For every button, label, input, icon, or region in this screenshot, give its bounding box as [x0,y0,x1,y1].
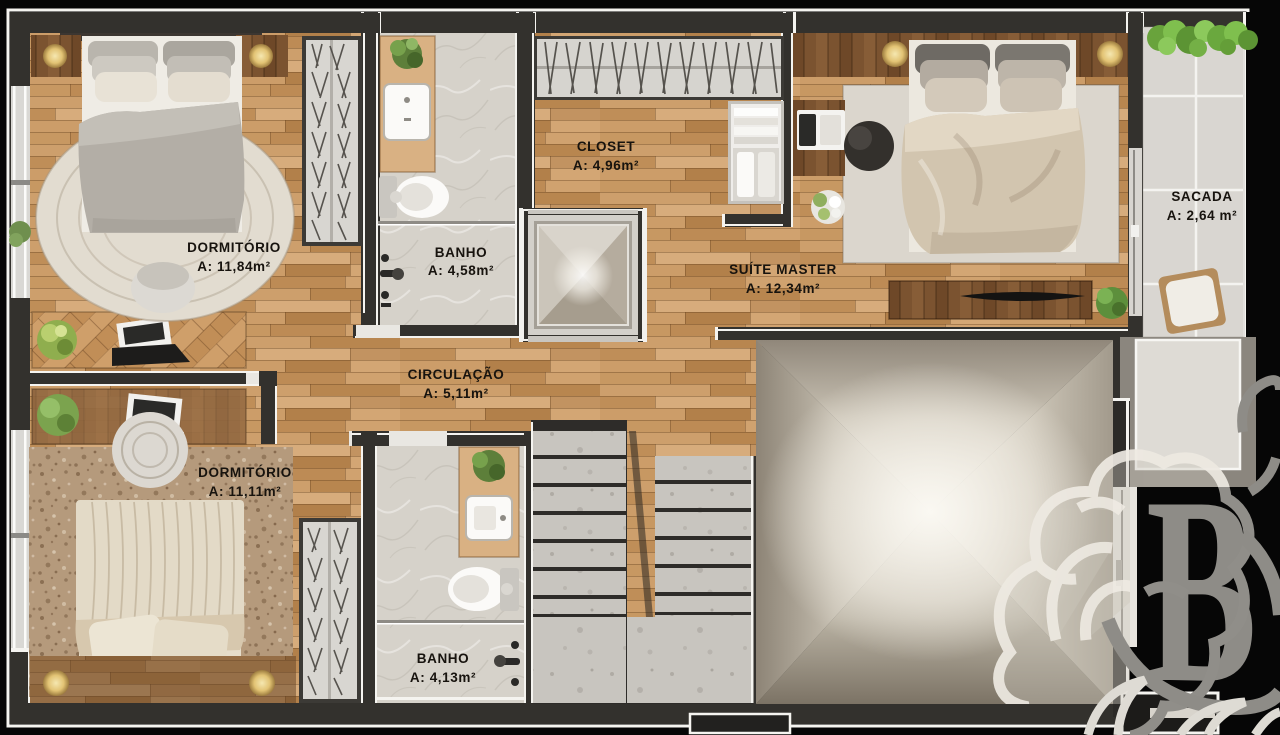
svg-text:A: 12,34m²: A: 12,34m² [746,281,820,296]
svg-text:A: 11,11m²: A: 11,11m² [209,484,282,499]
svg-text:BANHO: BANHO [417,651,470,666]
svg-text:SUÍTE MASTER: SUÍTE MASTER [729,262,837,277]
svg-text:DORMITÓRIO: DORMITÓRIO [187,240,281,255]
svg-text:SACADA: SACADA [1171,189,1232,204]
svg-text:A: 4,13m²: A: 4,13m² [410,670,476,685]
svg-text:CLOSET: CLOSET [577,139,636,154]
svg-text:DORMITÓRIO: DORMITÓRIO [198,465,292,480]
svg-text:A: 2,64 m²: A: 2,64 m² [1167,208,1238,223]
svg-text:BANHO: BANHO [435,245,488,260]
svg-text:A: 4,58m²: A: 4,58m² [428,263,494,278]
svg-text:A: 5,11m²: A: 5,11m² [423,386,488,401]
svg-text:A: 4,96m²: A: 4,96m² [573,158,639,173]
svg-text:CIRCULAÇÃO: CIRCULAÇÃO [408,367,505,382]
svg-text:A: 11,84m²: A: 11,84m² [197,259,271,274]
